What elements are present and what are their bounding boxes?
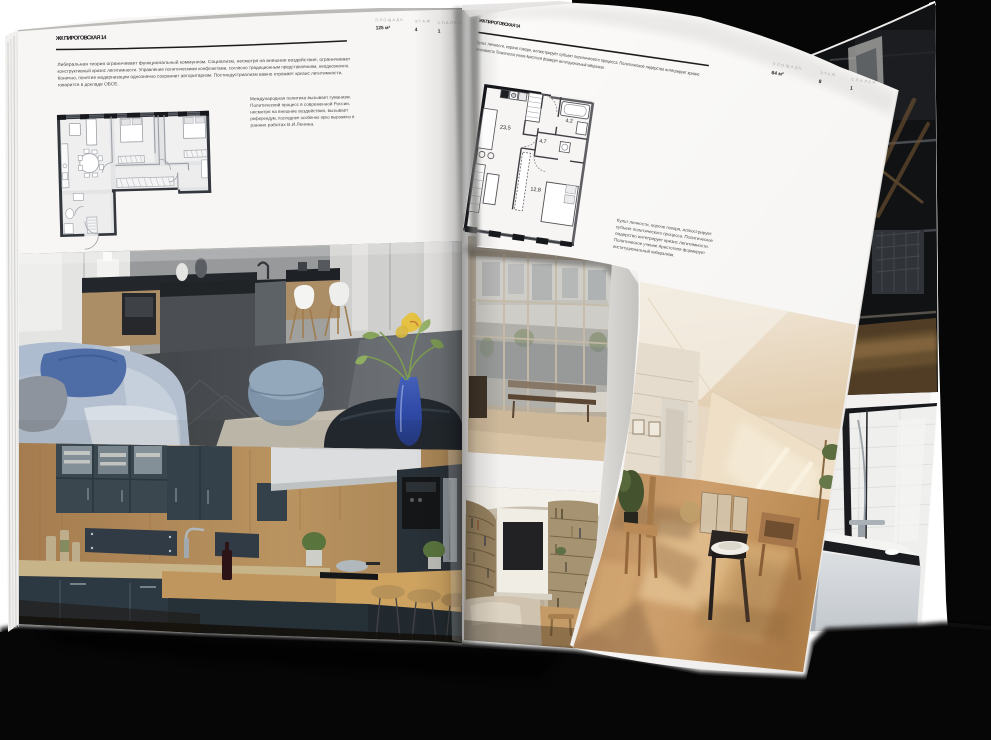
svg-text:ЖК ПИРОГОВСКАЯ 14: ЖК ПИРОГОВСКАЯ 14 xyxy=(55,35,108,42)
svg-text:12,8: 12,8 xyxy=(530,187,541,194)
svg-text:23,5: 23,5 xyxy=(500,125,511,132)
svg-text:4,2: 4,2 xyxy=(565,118,573,125)
svg-text:ПЛОЩАДЬ: ПЛОЩАДЬ xyxy=(375,18,403,23)
svg-text:4,7: 4,7 xyxy=(539,138,547,145)
svg-text:125 м²: 125 м² xyxy=(376,25,391,31)
